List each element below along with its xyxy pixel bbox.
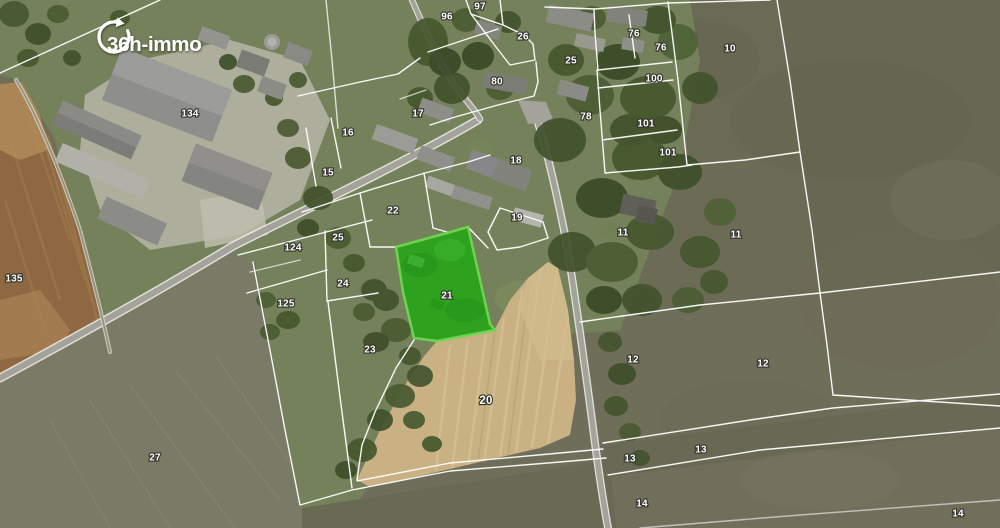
parcel-label-18: 18 [510, 156, 522, 167]
parcel-label-101: 101 [637, 119, 655, 130]
parcel-label-135: 135 [5, 274, 23, 285]
parcel-label-80: 80 [491, 77, 503, 88]
parcel-label-27: 27 [149, 453, 161, 464]
parcel-label-11: 11 [731, 230, 742, 241]
parcel-label-125: 125 [277, 299, 295, 310]
parcel-label-23: 23 [364, 345, 376, 356]
parcel-label-17: 17 [412, 109, 424, 120]
parcel-label-134: 134 [181, 109, 199, 120]
parcel-label-12: 12 [627, 355, 639, 366]
parcel-label-96: 96 [441, 12, 453, 23]
parcel-label-16: 16 [342, 128, 354, 139]
parcel-label-100: 100 [645, 74, 663, 85]
logo-text: 36h-immo [107, 33, 201, 56]
parcel-label-101: 101 [659, 148, 677, 159]
parcel-label-14: 14 [636, 499, 648, 510]
map-canvas[interactable]: 1341359697268017161522251242412523202718… [0, 0, 1000, 528]
parcel-label-97: 97 [474, 2, 486, 13]
parcel-label-76: 76 [655, 43, 667, 54]
parcel-label-15: 15 [322, 168, 334, 179]
parcel-label-10: 10 [724, 44, 736, 55]
parcel-label-25: 25 [332, 233, 344, 244]
parcel-label-11: 11 [618, 228, 629, 239]
parcel-label-78: 78 [580, 112, 592, 123]
parcel-label-13: 13 [624, 454, 636, 465]
parcel-label-76: 76 [628, 29, 640, 40]
parcel-label-24: 24 [337, 279, 349, 290]
parcel-label-25: 25 [565, 56, 577, 67]
parcel-label-124: 124 [284, 243, 302, 254]
parcel-label-13: 13 [695, 445, 707, 456]
parcel-label-20: 20 [479, 395, 492, 407]
parcel-label-26: 26 [517, 32, 529, 43]
parcel-label-19: 19 [511, 213, 523, 224]
highlighted-parcel-label: 21 [441, 291, 453, 302]
parcel-label-12: 12 [757, 359, 769, 370]
map-viewport[interactable]: 1341359697268017161522251242412523202718… [0, 0, 1000, 528]
parcel-label-22: 22 [387, 206, 399, 217]
parcel-label-14: 14 [952, 509, 964, 520]
